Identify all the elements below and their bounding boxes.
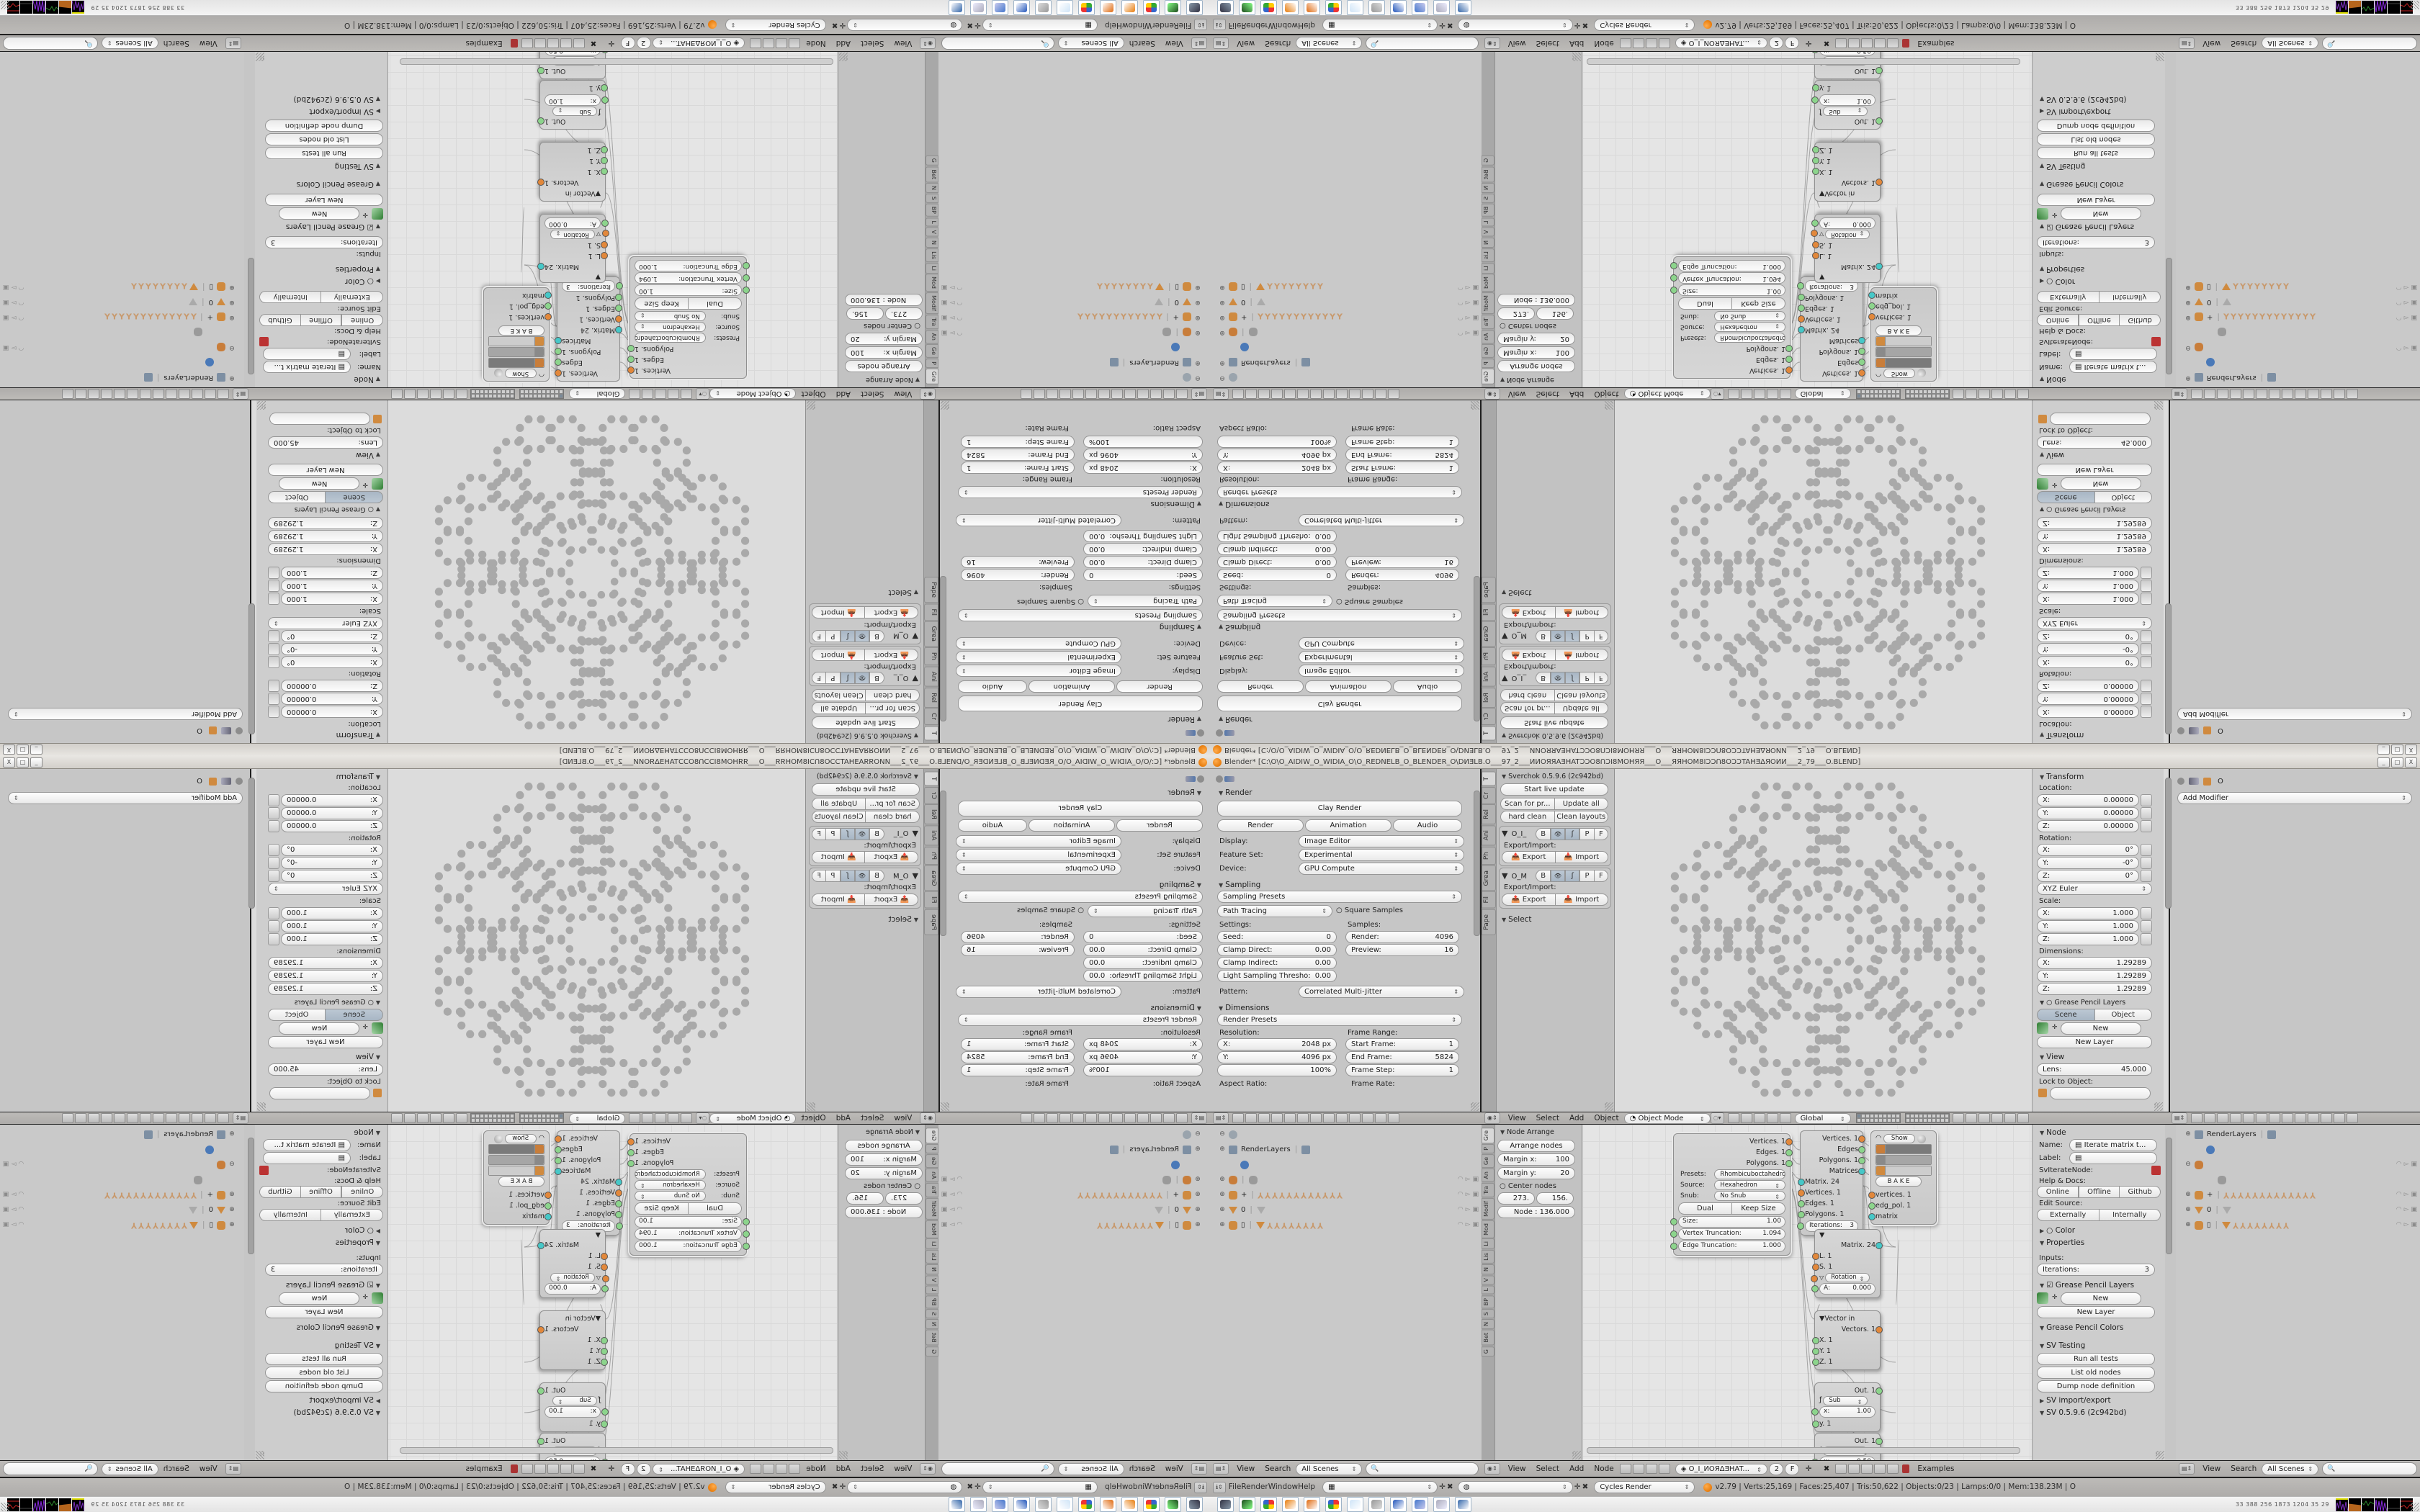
show-toggle[interactable]: 👁 xyxy=(855,630,869,642)
prop-tab-icon[interactable] xyxy=(1362,389,1373,399)
node-arrange-header[interactable]: ▼Node Arrange⁞⁞ xyxy=(841,374,923,385)
node-menu-select[interactable]: Select xyxy=(1536,1464,1559,1473)
gp-new-button[interactable]: New xyxy=(279,1292,359,1305)
gen-input-field[interactable]: Size:1.00 xyxy=(1678,284,1785,296)
node-tab-ge[interactable]: Ge xyxy=(926,344,938,358)
editor-type-properties-icon[interactable]: ▤⇕ xyxy=(2172,1112,2187,1124)
socket-orange[interactable] xyxy=(1798,315,1805,323)
lock-icon[interactable] xyxy=(2141,643,2152,655)
node-tab-n[interactable]: N xyxy=(926,183,938,193)
sv-testing-header[interactable]: ▼SV Testing⁞⁞ xyxy=(2037,161,2161,173)
add-scene-icon[interactable]: ✛ xyxy=(1574,1482,1581,1491)
wine-window-icon[interactable] xyxy=(949,0,965,15)
render-button[interactable]: Render xyxy=(1116,819,1203,832)
margin-y-field[interactable]: Margin y:20 xyxy=(1497,1167,1575,1179)
run-all-tests-button[interactable]: Run all tests xyxy=(2037,147,2155,159)
prop-tab-icon[interactable] xyxy=(1336,389,1348,399)
matrix-mode-select[interactable]: Rotation⇕ xyxy=(1825,1273,1870,1282)
lock-object-field[interactable] xyxy=(269,413,370,425)
export-button[interactable]: 📤 Export xyxy=(865,649,919,661)
viewport-menu-view[interactable]: View xyxy=(1508,390,1526,398)
outliner-row[interactable] xyxy=(1211,340,1482,355)
editor-type-properties-icon[interactable]: ▤⇕ xyxy=(2172,388,2187,400)
screenshot-tool-icon[interactable] xyxy=(1217,0,1234,15)
gen-presets-select[interactable]: Rhombicuboctahedron⇕ xyxy=(635,1169,706,1179)
fake-user-toggle[interactable]: F xyxy=(1595,870,1608,882)
outliner-row[interactable]: ⊕0|◠▻▣ xyxy=(2177,1202,2420,1218)
gp-new-button[interactable]: New xyxy=(2061,477,2141,490)
outliner-expander[interactable]: ⊕ xyxy=(1193,359,1203,366)
pencil-icon[interactable] xyxy=(372,208,383,220)
eye-toggle[interactable]: ◠ xyxy=(956,1191,962,1198)
socket-green[interactable] xyxy=(1812,1359,1819,1366)
socket-orange[interactable] xyxy=(1875,179,1883,186)
add-layout-icon[interactable]: ✛ xyxy=(974,20,981,29)
select-toggle[interactable]: ▻ xyxy=(1466,1206,1471,1213)
socket-green[interactable] xyxy=(537,1438,544,1445)
node-tab-mod[interactable]: Mod xyxy=(1482,1220,1494,1238)
render-toggle[interactable]: ▣ xyxy=(2411,1161,2417,1168)
sverchok-panel-header[interactable]: ▼Sverchok 0.5.9.6 (2c942bd)⁞⁞ xyxy=(809,771,921,783)
scale-field[interactable]: X:1.000 xyxy=(2037,593,2139,605)
screenshot-tool-icon[interactable] xyxy=(1217,1497,1234,1512)
samples-field[interactable]: Preview:16 xyxy=(961,944,1075,956)
render-toggle[interactable]: ▣ xyxy=(3,298,9,305)
outliner-row[interactable]: ⊕+|YYYYYYYYYYYY◠▻▣ xyxy=(938,310,1209,325)
transform-panel-header[interactable]: ▼Transform⁞⁞ xyxy=(2037,770,2159,783)
frame-field[interactable]: Frame Step:1 xyxy=(961,1064,1075,1076)
lock-icon[interactable] xyxy=(2141,870,2152,882)
prop-tab-icon[interactable] xyxy=(218,1113,229,1123)
node-tab-n[interactable]: N xyxy=(1482,1319,1494,1329)
node-tab-v[interactable]: V xyxy=(1482,1275,1494,1284)
dimension-field[interactable]: X:1.29289 xyxy=(2037,957,2152,969)
editor-type-outliner-icon[interactable]: ▤⇕ xyxy=(1213,37,1229,49)
sv-testing-header[interactable]: ▼SV Testing⁞⁞ xyxy=(259,161,383,173)
outliner-expander[interactable]: ⊖ xyxy=(2183,1161,2193,1168)
scrollbar[interactable] xyxy=(940,791,946,936)
node-arrange-header[interactable]: ▼Node Arrange⁞⁞ xyxy=(841,1127,923,1138)
samples-field[interactable]: Render:4096 xyxy=(1345,569,1459,581)
dimension-field[interactable]: Y:1.29289 xyxy=(268,530,383,542)
node-tab-ge[interactable]: Ge xyxy=(1482,344,1494,358)
socket-cyan[interactable] xyxy=(555,1168,562,1175)
outliner-row[interactable]: ⊕0|◠▻▣ xyxy=(0,294,243,310)
outliner-expander[interactable]: ⊕ xyxy=(2183,374,2193,381)
eye-toggle[interactable]: ◠ xyxy=(1458,283,1464,290)
fake-user-toggle[interactable]: F xyxy=(1595,630,1608,642)
resolution-field[interactable]: Y:4096 px xyxy=(1083,449,1203,461)
toolshelf-tab-ani[interactable]: Ani xyxy=(1482,666,1496,686)
lock-icon[interactable] xyxy=(268,857,279,869)
x-loc-field[interactable]: 273. xyxy=(1497,1192,1535,1205)
manipulator-icon[interactable] xyxy=(668,389,679,399)
node-tab-li[interactable]: Li xyxy=(926,263,938,274)
rotation-order-select[interactable]: XYZ Euler⇕ xyxy=(268,883,383,895)
node-menu-view[interactable]: View xyxy=(894,1464,912,1473)
prop-tab-icon[interactable] xyxy=(1323,389,1335,399)
scan-for-props-button[interactable]: Scan for pr... xyxy=(1500,798,1555,810)
select-toggle[interactable]: ▻ xyxy=(1466,283,1471,290)
notepad-icon[interactable] xyxy=(1057,0,1073,15)
export-button[interactable]: 📤 Export xyxy=(865,606,919,618)
node-vector-in[interactable]: ▼Vector inVectors. 1X. 1Y. 1Z. 1 xyxy=(1814,142,1881,202)
scenes-select[interactable]: All Scenes⇕ xyxy=(102,1463,158,1475)
prop-tab-icon[interactable] xyxy=(140,1113,151,1123)
lock-icon[interactable] xyxy=(268,680,279,692)
outliner-row[interactable]: ⊖ xyxy=(938,370,1209,385)
socket-orange[interactable] xyxy=(601,1253,608,1260)
outliner-row[interactable]: ⊕▯|YYYYYYYY◠▻▣ xyxy=(0,1218,243,1233)
list-old-nodes-button[interactable]: List old nodes xyxy=(2037,133,2155,145)
node-header-icon[interactable] xyxy=(1874,1464,1886,1474)
outliner-menu-view[interactable]: View xyxy=(1165,1464,1183,1473)
viewport-menu-select[interactable]: Select xyxy=(861,390,884,398)
outliner-row[interactable]: ⊕|◠▻▣ xyxy=(938,325,1209,340)
eye-toggle[interactable]: ◠ xyxy=(1458,328,1464,336)
dos-64-icon[interactable] xyxy=(1013,1497,1030,1512)
socket-green[interactable] xyxy=(627,1160,635,1167)
scene-field[interactable]: ◍⇕ xyxy=(847,19,962,31)
node-tab-tra[interactable]: Tra xyxy=(1482,1183,1494,1197)
image-viewer-icon[interactable] xyxy=(1412,1497,1428,1512)
scan-for-props-button[interactable]: Scan for pr... xyxy=(866,702,920,714)
outliner-menu-search[interactable]: Search xyxy=(1129,39,1155,48)
fake-user-toggle[interactable]: F xyxy=(812,630,825,642)
prop-tab-icon[interactable] xyxy=(2334,1113,2345,1123)
fake-user-toggle[interactable]: F xyxy=(812,672,825,684)
scene-field[interactable]: ◍⇕ xyxy=(1458,19,1573,31)
outliner-row[interactable]: ⊕+|YYYYYYYYYYYY◠▻▣ xyxy=(938,1187,1209,1202)
del-scene-icon[interactable]: ✖ xyxy=(832,1482,838,1491)
outliner-row[interactable]: ⊕RenderLayers| xyxy=(938,1142,1209,1157)
users-count-button[interactable]: 2 xyxy=(637,1463,651,1475)
x-field[interactable]: x:1.00 xyxy=(1819,1406,1875,1418)
socket-orange[interactable] xyxy=(555,1135,562,1143)
engine-select[interactable]: Cycles Render⇕ xyxy=(725,19,826,31)
gp-new-layer-button[interactable]: New Layer xyxy=(2037,464,2152,476)
sv-testing-header[interactable]: ▼SV Testing⁞⁞ xyxy=(259,1339,383,1351)
viewport-menu-add[interactable]: Add xyxy=(1569,1114,1584,1122)
node-tab-tra[interactable]: Tra xyxy=(926,315,938,329)
lock-icon[interactable] xyxy=(2141,807,2152,819)
pin-icon[interactable] xyxy=(2177,727,2184,734)
snap-icon[interactable] xyxy=(1966,389,1977,399)
socket-cyan[interactable] xyxy=(1798,1179,1805,1186)
dimension-field[interactable]: Y:1.29289 xyxy=(2037,970,2152,982)
gen-input-field[interactable]: Edge Truncation:1.000 xyxy=(635,260,742,271)
info-menu-file[interactable]: File xyxy=(1179,1482,1192,1491)
grease-pencil-layers-header[interactable]: ▼○ Grease Pencil Layers⁞⁞ xyxy=(2037,997,2159,1009)
clean-layouts-button[interactable]: Clean layouts xyxy=(812,811,866,823)
users-count-button[interactable]: 2 xyxy=(637,37,651,50)
import-button[interactable]: 📥 Import xyxy=(812,851,865,863)
render-panel-header[interactable]: ▼Render⁞⁞ xyxy=(947,786,1204,798)
y-loc-field[interactable]: 156. xyxy=(846,307,884,320)
dimension-field[interactable]: X:1.29289 xyxy=(268,957,383,969)
node-math-squareroot[interactable]: Out. 1ƒSquareroot⇕x:0.50 xyxy=(539,52,606,79)
center-nodes-checkbox[interactable]: ○ Center nodes xyxy=(841,1181,923,1192)
snap-icon[interactable] xyxy=(2004,389,2016,399)
lock-icon[interactable] xyxy=(2141,567,2152,579)
render-toggle[interactable]: ▣ xyxy=(941,1221,948,1228)
rotation-field[interactable]: Z:0° xyxy=(2037,870,2139,882)
outliner-expander[interactable]: ⊕ xyxy=(227,1130,237,1138)
tree-name-field[interactable]: ◈ O_I_ИОЯΔƎHAT...⇕ xyxy=(653,1464,745,1475)
snap-icon[interactable] xyxy=(391,389,403,399)
lock-icon[interactable] xyxy=(2141,844,2152,856)
prop-tab-icon[interactable] xyxy=(1310,1113,1322,1123)
node-category-icon[interactable] xyxy=(763,38,774,48)
node-tab-lis[interactable]: Lis xyxy=(1482,248,1494,262)
node-tab-n[interactable]: N xyxy=(1482,183,1494,193)
import-button[interactable]: 📥 Import xyxy=(812,606,865,618)
location-field[interactable]: Y:0.00000 xyxy=(281,807,383,819)
manipulator-icon[interactable] xyxy=(681,389,692,399)
sv-import-export-header[interactable]: ▶SV import/export⁞⁞ xyxy=(259,1394,383,1406)
outliner-expander[interactable]: ⊕ xyxy=(1193,1191,1203,1198)
node-tab-mod[interactable]: Mod xyxy=(1482,274,1494,292)
rotation-field[interactable]: Y:-0° xyxy=(2037,857,2139,869)
math-fn-select[interactable]: Sub⇕ xyxy=(1823,107,1868,116)
samples-field[interactable]: Preview:16 xyxy=(1345,944,1459,956)
process-toggle[interactable]: P xyxy=(825,630,840,642)
audio-button[interactable]: Audio xyxy=(1393,819,1462,832)
lock-icon[interactable] xyxy=(268,844,279,856)
eye-toggle[interactable]: ◠ xyxy=(2396,313,2402,320)
node-tab-bp[interactable]: BP xyxy=(926,1295,938,1308)
node-matrix-in[interactable]: ▼Matrix. 24L. 1S. 1▽Rotation⇕A:0.000 xyxy=(1814,1229,1881,1298)
scale-field[interactable]: Y:1.000 xyxy=(281,580,383,592)
gen-source-select[interactable]: Hexahedron⇕ xyxy=(1714,1180,1785,1190)
sverchok-panel-header[interactable]: ▼Sverchok 0.5.9.6 (2c942bd)⁞⁞ xyxy=(809,729,921,741)
node-category-icon[interactable] xyxy=(1659,38,1670,48)
snap-icon[interactable] xyxy=(417,389,429,399)
node-iterate[interactable]: Vertices. 1EdgesPolygons. 1MatricesMatri… xyxy=(1800,276,1863,382)
clay-render-button[interactable]: Clay Render xyxy=(958,801,1203,816)
run-all-tests-button[interactable]: Run all tests xyxy=(265,147,383,159)
frame-field[interactable]: End Frame:5824 xyxy=(1345,1051,1459,1063)
socket-cyan[interactable] xyxy=(537,263,544,270)
color-panel-header[interactable]: ▶○ Color⁞⁞ xyxy=(2037,1224,2161,1236)
node-category-icon[interactable] xyxy=(1633,1464,1644,1474)
show-toggle[interactable]: 👁 xyxy=(1551,672,1565,684)
orientation-select[interactable]: Global⇕ xyxy=(1795,389,1851,400)
socket-green[interactable] xyxy=(627,345,635,352)
margin-y-field[interactable]: Margin y:20 xyxy=(845,1167,923,1179)
iterations-field[interactable]: Iterations:3 xyxy=(265,1264,383,1276)
info-menu-window[interactable]: Window xyxy=(1268,1482,1298,1491)
socket-green[interactable] xyxy=(1811,1285,1819,1292)
del-layout-icon[interactable]: ✖ xyxy=(967,1482,973,1491)
select-toggle[interactable]: ▻ xyxy=(12,343,17,351)
prop-tab-icon[interactable] xyxy=(2191,1113,2202,1123)
select-panel-header[interactable]: ▼Select⁞⁞ xyxy=(809,913,921,925)
node-tab-modif[interactable]: Modif xyxy=(926,292,938,314)
viewer-color-swatch[interactable] xyxy=(488,358,544,368)
feature-set-select[interactable]: Experimental⇕ xyxy=(1299,849,1464,861)
dimension-field[interactable]: Z:1.29289 xyxy=(268,517,383,529)
node-tab-g[interactable]: G xyxy=(1482,1346,1494,1356)
node-header-icon[interactable] xyxy=(1874,38,1886,48)
socket-orange[interactable] xyxy=(1812,1264,1819,1271)
orientation-select[interactable]: Global⇕ xyxy=(569,1113,625,1124)
internally-button[interactable]: Internally xyxy=(259,291,321,303)
clean-layouts-button[interactable]: Clean layouts xyxy=(1555,811,1609,823)
snap-icon[interactable] xyxy=(430,389,442,399)
snap-icon[interactable] xyxy=(404,1113,416,1123)
prop-tab-icon[interactable] xyxy=(2256,1113,2267,1123)
toolshelf-tab-t[interactable]: T xyxy=(1482,726,1496,741)
socket-orange[interactable] xyxy=(537,1326,544,1333)
prop-tab-icon[interactable] xyxy=(1111,1113,1123,1123)
node-header-icon[interactable] xyxy=(547,38,559,48)
eye-toggle[interactable]: ◠ xyxy=(18,343,24,351)
editor-type-outliner-icon[interactable]: ▤⇕ xyxy=(225,37,241,49)
node-viewer-draw[interactable]: ◠ShowB A K Evertices. 1edg_pol. 1matrix xyxy=(1870,287,1937,382)
spiral-orange-icon[interactable] xyxy=(1304,0,1320,15)
prop-tab-icon[interactable] xyxy=(1388,1113,1399,1123)
outliner-row[interactable]: ⊕+|YYYYYYYYYYYYY◠▻▣ xyxy=(0,1187,243,1202)
node-menu-node[interactable]: Node xyxy=(1594,1464,1613,1473)
outliner-row[interactable]: ⊖◠▻▣ xyxy=(0,1157,243,1172)
snap-icon[interactable] xyxy=(2017,389,2029,399)
node-tab-lis[interactable]: Lis xyxy=(926,1250,938,1264)
angle-field[interactable]: A:0.000 xyxy=(544,217,601,229)
lock-icon[interactable] xyxy=(2141,794,2152,806)
lock-icon[interactable] xyxy=(268,807,279,819)
render-button[interactable]: Render xyxy=(1116,680,1203,693)
node-tab-tra[interactable]: Tra xyxy=(926,1183,938,1197)
socket-orange[interactable] xyxy=(1858,369,1865,377)
unlink-icon[interactable]: ✖ xyxy=(1824,39,1830,48)
socket-orange[interactable] xyxy=(1811,230,1818,237)
outliner-expander[interactable]: ⊕ xyxy=(2183,313,2193,320)
pattern-select[interactable]: Correlated Multi-Jitter⇕ xyxy=(1299,986,1464,998)
node-menu-add[interactable]: Add xyxy=(836,39,851,48)
pencil-icon[interactable] xyxy=(372,1292,383,1304)
speaker-icon[interactable] xyxy=(1035,1497,1052,1512)
angle-field[interactable]: A:0.000 xyxy=(1819,217,1875,229)
socket-green[interactable] xyxy=(1785,1160,1793,1167)
lock-object-field[interactable] xyxy=(2050,413,2151,425)
lock-icon[interactable] xyxy=(268,656,279,668)
gp-layers-header[interactable]: ▼☑ Grease Pencil Layers⁞⁞ xyxy=(259,1279,383,1291)
prop-tab-icon[interactable] xyxy=(2217,389,2228,399)
info-menu-render[interactable]: Render xyxy=(1152,20,1178,29)
socket-orange[interactable] xyxy=(1811,1275,1818,1282)
render-toggle[interactable]: ▣ xyxy=(3,1161,9,1168)
node-viewer-draw[interactable]: ◠ShowB A K Evertices. 1edg_pol. 1matrix xyxy=(483,287,550,382)
layer-grid[interactable] xyxy=(1905,1113,1950,1123)
prop-tab-icon[interactable] xyxy=(1047,389,1058,399)
node-canvas-hscroll[interactable] xyxy=(400,58,833,65)
viewport-menu-view[interactable]: View xyxy=(1508,1114,1526,1122)
lock-icon[interactable] xyxy=(268,567,279,579)
prop-tab-icon[interactable] xyxy=(1124,1113,1136,1123)
prop-tab-icon[interactable] xyxy=(2347,1113,2358,1123)
clean-layouts-button[interactable]: Clean layouts xyxy=(812,689,866,701)
script-icon[interactable] xyxy=(259,1166,269,1175)
eye-toggle[interactable]: ◠ xyxy=(18,298,24,305)
tree-name-field[interactable]: ◈ O_I_ИОЯΔƎHAT...⇕ xyxy=(1675,38,1767,49)
show-button[interactable]: Show xyxy=(505,369,537,378)
offline-button[interactable]: Offline xyxy=(2079,1186,2120,1198)
center-nodes-checkbox[interactable]: ○ Center nodes xyxy=(1497,321,1579,332)
viewer-color-swatch[interactable] xyxy=(488,336,544,346)
socket-green[interactable] xyxy=(1670,287,1677,294)
snap-icon[interactable] xyxy=(2017,1113,2029,1123)
toolshelf-tab-fil[interactable]: Fil xyxy=(1482,603,1496,621)
pin-icon[interactable] xyxy=(1216,775,1223,783)
node-header-icon[interactable] xyxy=(1848,38,1860,48)
toolshelf-tab-ani[interactable]: Ani xyxy=(1482,825,1496,845)
bake-toggle[interactable]: B xyxy=(869,630,884,642)
node-tab-s[interactable]: S xyxy=(1482,194,1494,203)
animate-toggle[interactable]: ʃ xyxy=(841,828,855,840)
add-modifier-dropdown[interactable]: Add Modifier⇕ xyxy=(2177,792,2412,804)
lock-object-field[interactable] xyxy=(269,1087,370,1099)
viewer-color-swatch[interactable] xyxy=(1875,358,1932,368)
node-tab-l[interactable]: L xyxy=(926,217,938,226)
gp-new-button[interactable]: New xyxy=(279,1022,359,1035)
lens-field[interactable]: Lens:45.000 xyxy=(268,1063,383,1076)
update-all-button[interactable]: Update all xyxy=(812,798,866,810)
snap-icon[interactable] xyxy=(456,389,467,399)
socket-orange[interactable] xyxy=(627,366,635,374)
gen-input-field[interactable]: Size:1.00 xyxy=(635,1216,742,1228)
github-button[interactable]: Github xyxy=(2120,314,2161,326)
dump-node-definition-button[interactable]: Dump node definition xyxy=(2037,1380,2155,1392)
outliner-expander[interactable]: ⊕ xyxy=(1217,1221,1227,1228)
run-all-tests-button[interactable]: Run all tests xyxy=(2037,1353,2155,1365)
info-menu-render[interactable]: Render xyxy=(1152,1482,1178,1491)
outliner-row[interactable]: ⊖ xyxy=(938,1127,1209,1142)
node-iterate[interactable]: Vertices. 1EdgesPolygons. 1MatricesMatri… xyxy=(1800,1130,1863,1236)
hard-clean-button[interactable]: hard clean xyxy=(1500,811,1555,823)
outliner-expander[interactable]: ⊖ xyxy=(2183,343,2193,351)
externally-button[interactable]: Externally xyxy=(321,291,384,303)
node-header-icon[interactable] xyxy=(1887,1464,1899,1474)
toolshelf-tab-t[interactable]: T xyxy=(1482,772,1496,786)
audio-button[interactable]: Audio xyxy=(1393,680,1462,693)
socket-green[interactable] xyxy=(601,146,608,153)
select-toggle[interactable]: ▻ xyxy=(1466,298,1471,305)
editor-type-info-icon[interactable]: ℹ⇕ xyxy=(1194,19,1207,31)
toolshelf-tab-ani[interactable]: Ani xyxy=(924,666,938,686)
editor-type-properties-icon[interactable]: ▤⇕ xyxy=(1213,388,1229,400)
socket-green[interactable] xyxy=(743,1218,750,1225)
resolution-field[interactable]: 100% xyxy=(1217,1064,1337,1076)
resolution-field[interactable]: 100% xyxy=(1217,436,1337,448)
add-icon[interactable]: ✛ xyxy=(2050,1022,2059,1035)
viewport-menu-object[interactable]: Object xyxy=(1594,390,1618,398)
node-matrix-in[interactable]: ▼Matrix. 24L. 1S. 1▽Rotation⇕A:0.000 xyxy=(1814,214,1881,283)
outliner-row[interactable]: ⊕▯|YYYYYYYY◠▻▣ xyxy=(1211,279,1482,294)
rotation-order-select[interactable]: XYZ Euler⇕ xyxy=(2037,617,2152,629)
dimensions-panel-header[interactable]: ▼Dimensions⁞⁞ xyxy=(947,498,1204,510)
bake-toggle[interactable]: B xyxy=(869,870,884,882)
draw-mode-icon[interactable]: ◌▾ xyxy=(696,388,709,400)
sampling-setting-field[interactable]: Seed:0 xyxy=(1217,569,1337,581)
add-layout-icon[interactable]: ✛ xyxy=(1439,20,1446,29)
node-category-icon[interactable] xyxy=(1646,38,1657,48)
node-tab-l[interactable]: L xyxy=(926,1285,938,1294)
outliner-expander[interactable]: ⊕ xyxy=(1217,313,1227,320)
prop-tab-icon[interactable] xyxy=(1271,1113,1283,1123)
lock-icon[interactable] xyxy=(2141,857,2152,869)
outliner-row[interactable]: ⊖ xyxy=(1211,1127,1482,1142)
